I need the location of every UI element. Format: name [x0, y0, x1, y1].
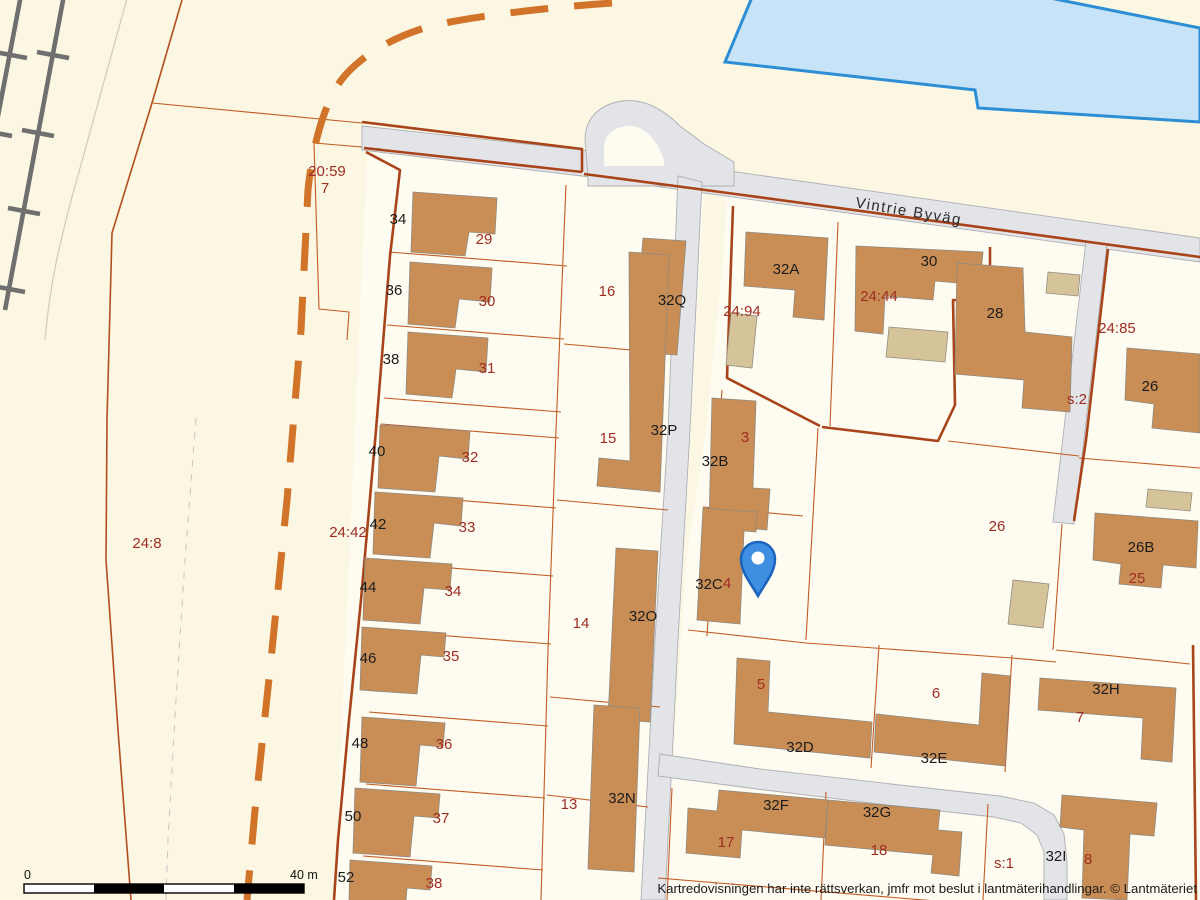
parcel-number-label: 24:44: [860, 288, 898, 305]
address-label: 42: [370, 516, 387, 533]
address-label: 32P: [651, 422, 678, 439]
parcel-number-label: 3: [741, 429, 749, 446]
parcel-number-label: 34: [445, 583, 462, 600]
building-32n: [588, 705, 640, 872]
address-label: 32N: [608, 790, 636, 807]
pin-hole: [752, 552, 765, 565]
parcel-number-label: 14: [573, 615, 590, 632]
scale-segment: [164, 884, 234, 893]
building-32o: [608, 548, 658, 722]
parcel-number-label: 7: [321, 180, 329, 197]
parcel-number-label: 29: [476, 231, 493, 248]
address-label: 28: [987, 305, 1004, 322]
parcel-number-label: 18: [871, 842, 888, 859]
parcel-number-label: 24:94: [723, 303, 761, 320]
cadastral-map-canvas: 3436384042444648505229303132333435363738…: [0, 0, 1200, 900]
address-label: 26: [1142, 378, 1159, 395]
parcel-number-label: 36: [436, 736, 453, 753]
parcel-number-label: 7: [1076, 709, 1084, 726]
address-label: 32D: [786, 739, 814, 756]
address-label: 44: [360, 579, 377, 596]
address-label: 26B: [1128, 539, 1155, 556]
address-label: 46: [360, 650, 377, 667]
parcel-number-label: 25: [1129, 570, 1146, 587]
address-label: 32G: [863, 804, 891, 821]
outbuilding: [886, 327, 948, 362]
address-label: 32O: [629, 608, 657, 625]
address-label: 30: [921, 253, 938, 270]
scale-segment: [234, 884, 304, 893]
address-label: 32I: [1046, 848, 1067, 865]
scale-zero-label: 0: [24, 868, 31, 882]
address-label: 32F: [763, 797, 789, 814]
address-label: 32B: [702, 453, 729, 470]
parcel-number-label: 24:42: [329, 524, 367, 541]
parcel-number-label: 4: [723, 575, 731, 592]
parcel-number-label: 8: [1084, 851, 1092, 868]
address-label: 48: [352, 735, 369, 752]
parcel-number-label: 24:85: [1098, 320, 1136, 337]
address-label: 32A: [773, 261, 800, 278]
address-label: 52: [338, 869, 355, 886]
scale-segment: [94, 884, 164, 893]
parcel-number-label: 20:59: [308, 163, 346, 180]
outbuilding: [1046, 272, 1080, 296]
outbuilding: [726, 313, 757, 368]
parcel-number-label: 13: [561, 796, 578, 813]
parcel-number-label: s:1: [994, 855, 1014, 872]
outbuilding: [1008, 580, 1049, 628]
parcel-number-label: 38: [426, 875, 443, 892]
parcel-number-label: 31: [479, 360, 496, 377]
address-label: 34: [390, 211, 407, 228]
address-label: 32E: [921, 750, 948, 767]
outbuilding: [1146, 489, 1192, 511]
address-label: 32Q: [658, 292, 686, 309]
parcel-number-label: 6: [932, 685, 940, 702]
address-label: 36: [386, 282, 403, 299]
parcel-number-label: 26: [989, 518, 1006, 535]
address-label: 40: [369, 443, 386, 460]
parcel-number-label: 16: [599, 283, 616, 300]
copyright-text: Kartredovisningen har inte rättsverkan, …: [657, 881, 1197, 896]
parcel-number-label: 5: [757, 676, 765, 693]
scale-segment: [24, 884, 94, 893]
parcel-number-label: s:2: [1067, 391, 1087, 408]
address-label: 32C: [695, 576, 723, 593]
address-label: 32H: [1092, 681, 1120, 698]
parcel-number-label: 30: [479, 293, 496, 310]
parcel-number-label: 24:8: [132, 535, 161, 552]
address-label: 38: [383, 351, 400, 368]
parcel-number-label: 35: [443, 648, 460, 665]
parcel-number-label: 32: [462, 449, 479, 466]
parcel-number-label: 15: [600, 430, 617, 447]
parcel-number-label: 33: [459, 519, 476, 536]
address-label: 50: [345, 808, 362, 825]
parcel-number-label: 17: [718, 834, 735, 851]
scale-distance-label: 40 m: [290, 868, 318, 882]
parcel-number-label: 37: [433, 810, 450, 827]
